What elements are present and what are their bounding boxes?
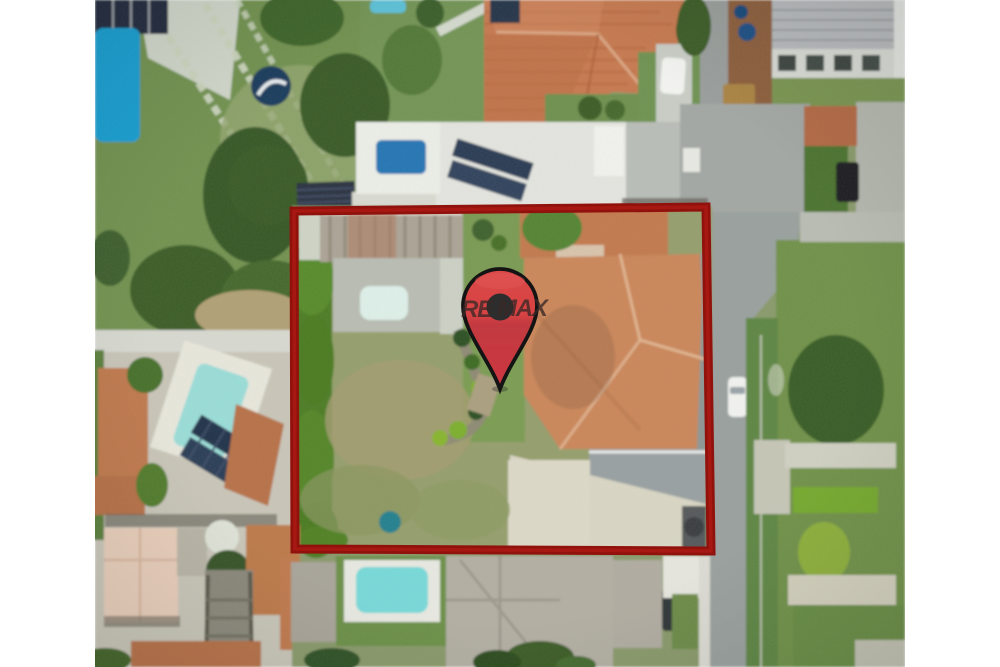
svg-text:MAX: MAX <box>497 295 550 322</box>
svg-text:RE: RE <box>461 296 494 323</box>
